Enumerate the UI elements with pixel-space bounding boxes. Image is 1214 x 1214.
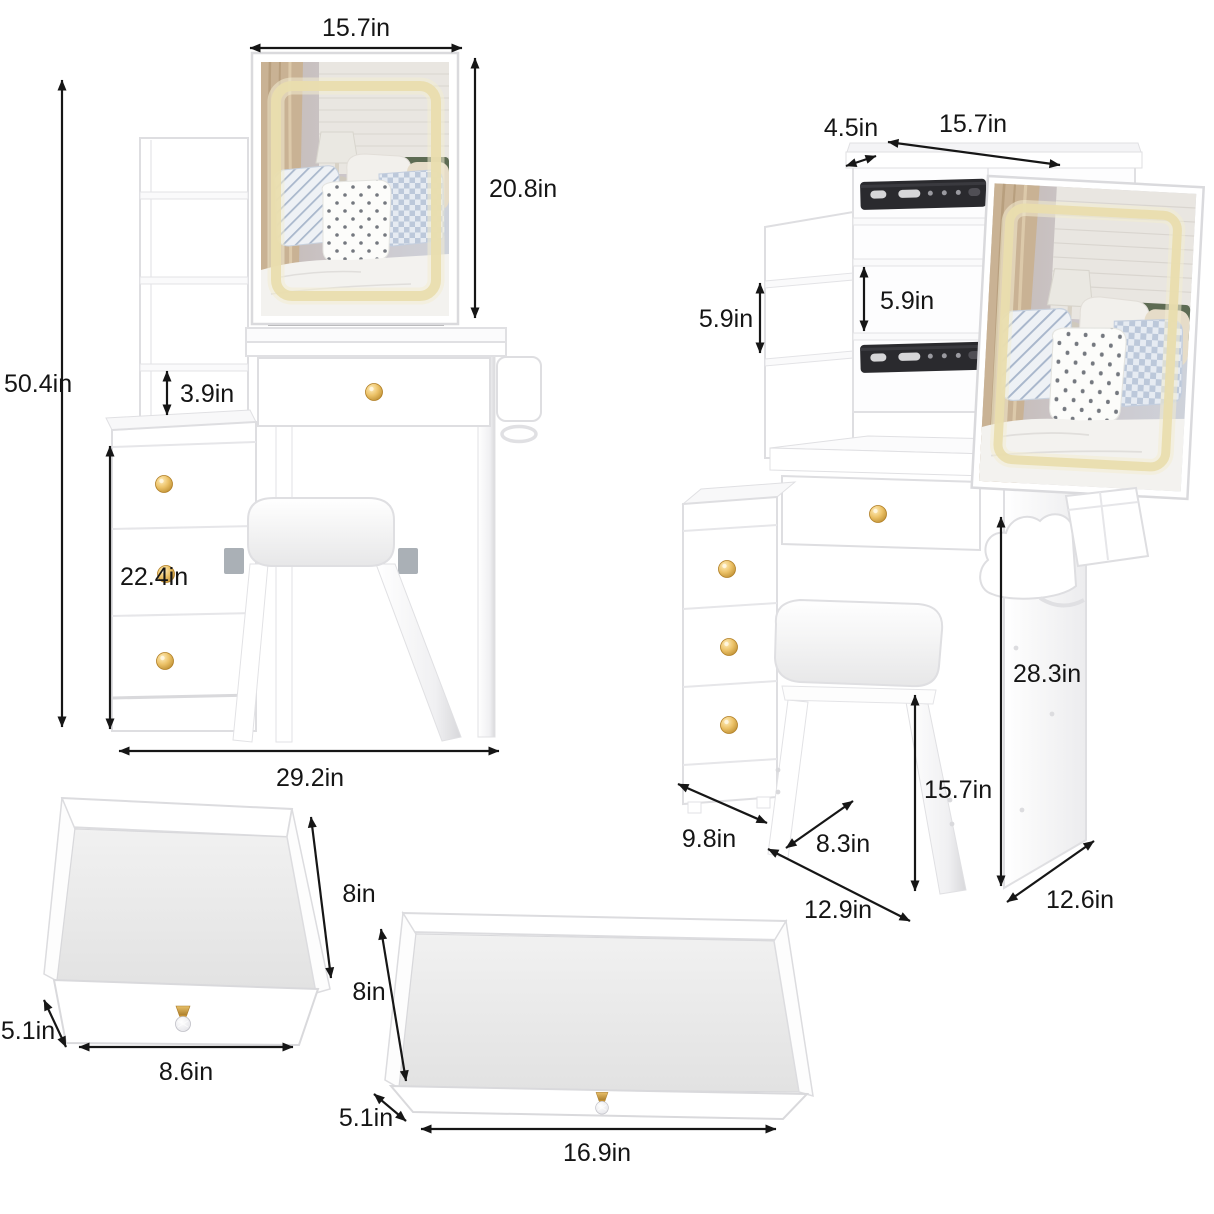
shelf-board bbox=[140, 277, 248, 284]
cabinet-foot bbox=[757, 797, 770, 808]
stool-leg bbox=[376, 564, 461, 741]
dim-label-left-mirror-height: 20.8in bbox=[489, 175, 557, 203]
dim-label-small-width: 8.6in bbox=[159, 1058, 213, 1086]
gold-knob-icon bbox=[870, 506, 887, 523]
dim-label-left-cabinet-height: 22.4in bbox=[120, 563, 188, 591]
dim-label-left-overall-height: 50.4in bbox=[4, 370, 72, 398]
drawer-slide-rail bbox=[860, 342, 987, 373]
drawer-interior bbox=[57, 829, 316, 990]
stool bbox=[224, 498, 461, 742]
product-dimension-diagram: 15.7in 20.8in 50.4in 3.9in 22.4in 29.2in… bbox=[0, 0, 1214, 1214]
gold-knob-icon bbox=[721, 639, 738, 656]
crystal-knob-icon bbox=[596, 1092, 609, 1114]
gold-knob-icon bbox=[157, 653, 174, 670]
dim-label-right-stool-depth: 8.3in bbox=[816, 830, 870, 858]
dim-label-small-depth: 8in bbox=[342, 880, 375, 908]
dim-label-small-height: 5.1in bbox=[1, 1017, 55, 1045]
gold-knob-icon bbox=[719, 561, 736, 578]
gold-knob-icon bbox=[366, 384, 383, 401]
dim-label-wide-height: 5.1in bbox=[339, 1104, 393, 1132]
dim-label-left-overall-width: 29.2in bbox=[276, 764, 344, 792]
dim-label-right-middle-shelf: 5.9in bbox=[880, 287, 934, 315]
dim-label-right-left-shelf: 5.9in bbox=[699, 305, 753, 333]
diagram-canvas: 15.7in 20.8in 50.4in 3.9in 22.4in 29.2in… bbox=[0, 0, 1214, 1214]
stool-cushion bbox=[775, 600, 942, 686]
dim-label-right-desktop-depth: 12.6in bbox=[1046, 886, 1114, 914]
dim-label-wide-depth: 8in bbox=[352, 978, 385, 1006]
dim-label-right-top-depth: 4.5in bbox=[824, 114, 878, 142]
dim-label-right-cabinet-depth: 9.8in bbox=[682, 825, 736, 853]
dim-label-left-shelf-gap: 3.9in bbox=[180, 380, 234, 408]
small-drawer-detail bbox=[44, 798, 330, 1045]
wide-drawer-detail bbox=[385, 913, 813, 1119]
cabinet-foot bbox=[688, 802, 701, 813]
mirror-reflection bbox=[261, 62, 449, 316]
shelf-board bbox=[140, 192, 248, 199]
gold-knob-icon bbox=[156, 476, 173, 493]
dim-label-left-mirror-width: 15.7in bbox=[322, 14, 390, 42]
dim-label-right-desk-height: 28.3in bbox=[1013, 660, 1081, 688]
sliding-led-mirror bbox=[972, 176, 1204, 499]
stool-cushion bbox=[248, 498, 394, 566]
dim-label-right-mirror-width: 15.7in bbox=[939, 110, 1007, 138]
drawer-slide-rail bbox=[860, 179, 987, 210]
shelf-board bbox=[140, 364, 248, 371]
hair-dryer-holder bbox=[497, 357, 541, 442]
drawer-interior bbox=[399, 934, 801, 1092]
metal-bracket bbox=[224, 548, 244, 574]
dim-label-right-knee-width: 12.9in bbox=[804, 896, 872, 924]
led-mirror bbox=[252, 53, 458, 324]
crystal-knob-icon bbox=[176, 1006, 191, 1032]
metal-bracket bbox=[398, 548, 418, 574]
hair-dryer-holder bbox=[980, 514, 1076, 598]
back-shelf-tower bbox=[765, 212, 853, 458]
gold-knob-icon bbox=[721, 717, 738, 734]
hutch-top-panel bbox=[846, 152, 1142, 168]
dim-label-right-stool-height: 15.7in bbox=[924, 776, 992, 804]
dim-label-wide-width: 16.9in bbox=[563, 1139, 631, 1167]
